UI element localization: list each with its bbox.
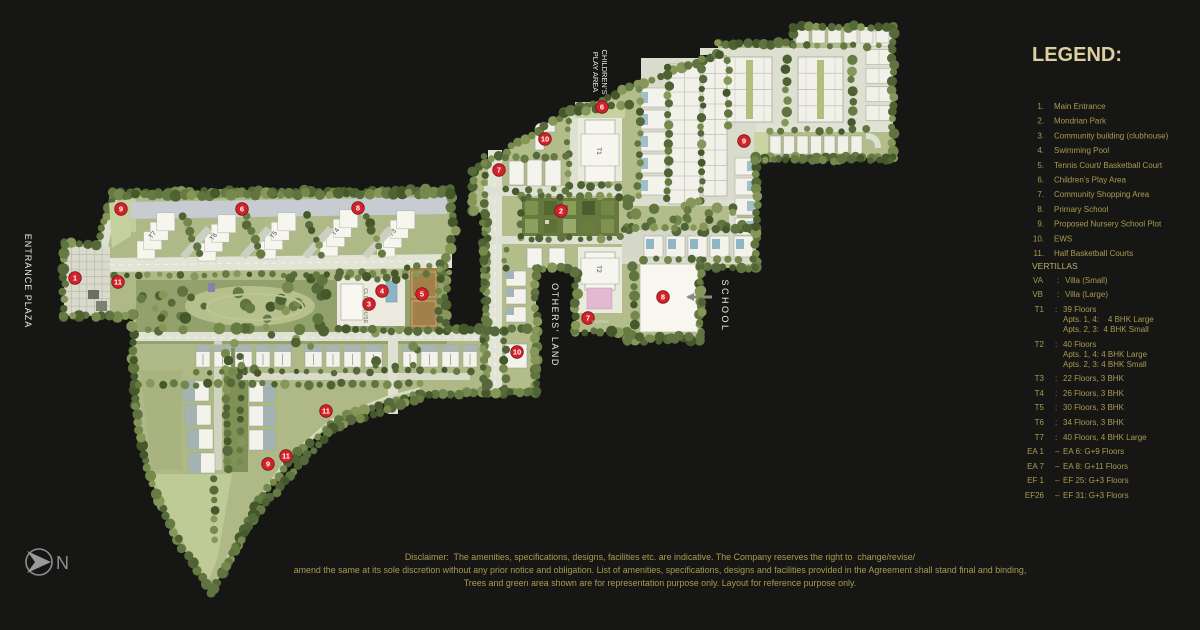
- svg-text:SHOPPING: SHOPPING: [592, 320, 609, 324]
- svg-text:5.: 5.: [1037, 161, 1044, 170]
- svg-text:T1: T1: [1035, 305, 1045, 314]
- svg-text:Villa (Small): Villa (Small): [1065, 276, 1108, 285]
- svg-text:7: 7: [497, 166, 501, 175]
- svg-text:EWS: EWS: [1054, 234, 1072, 243]
- svg-text:EF 1: EF 1: [1027, 476, 1044, 485]
- svg-text:1.: 1.: [1037, 102, 1044, 111]
- svg-text:Tennis Court/ Basketball Court: Tennis Court/ Basketball Court: [1054, 161, 1163, 170]
- svg-text:–: –: [1055, 491, 1060, 500]
- svg-text:3: 3: [367, 300, 371, 309]
- svg-text:–: –: [1055, 447, 1060, 456]
- svg-text::: :: [1055, 340, 1057, 349]
- svg-text:Main Entrance: Main Entrance: [1054, 102, 1106, 111]
- svg-text:EA 1: EA 1: [1027, 447, 1044, 456]
- svg-text:Proposed Nursery School Plot: Proposed Nursery School Plot: [1054, 220, 1162, 229]
- svg-text:Mondrian Park: Mondrian Park: [1054, 117, 1107, 126]
- svg-text:T5: T5: [1035, 403, 1045, 412]
- svg-text:amend the same at its sole dis: amend the same at its sole discretion wi…: [294, 565, 1027, 575]
- svg-text:Apts. 1, 4: 4 BHK Large: Apts. 1, 4: 4 BHK Large: [1063, 315, 1154, 324]
- svg-text:11: 11: [322, 407, 330, 416]
- svg-text:6: 6: [240, 205, 244, 214]
- svg-text:34 Floors, 3 BHK: 34 Floors, 3 BHK: [1063, 418, 1125, 427]
- svg-text:–: –: [1055, 462, 1060, 471]
- svg-text:EA 6: G+9 Floors: EA 6: G+9 Floors: [1063, 447, 1124, 456]
- svg-text:VA: VA: [1033, 276, 1044, 285]
- svg-text:10.: 10.: [1033, 234, 1044, 243]
- svg-text:Villa (Large): Villa (Large): [1065, 290, 1108, 299]
- svg-text:T4: T4: [1035, 389, 1045, 398]
- svg-text:T1: T1: [595, 147, 602, 155]
- svg-text:6: 6: [600, 103, 604, 112]
- svg-text:39 Floors: 39 Floors: [1063, 305, 1096, 314]
- svg-text:Community building (clubhouse): Community building (clubhouse): [1054, 131, 1169, 140]
- svg-text:Children’s Play Area: Children’s Play Area: [1054, 176, 1126, 185]
- svg-text:6.: 6.: [1037, 176, 1044, 185]
- svg-text:EA 8: G+11 Floors: EA 8: G+11 Floors: [1063, 462, 1128, 471]
- svg-text:T7: T7: [1035, 433, 1045, 442]
- svg-text:7.: 7.: [1037, 190, 1044, 199]
- svg-text:11: 11: [282, 452, 290, 461]
- svg-text:OTHERS’ LAND: OTHERS’ LAND: [550, 283, 560, 367]
- svg-text:3.: 3.: [1037, 131, 1044, 140]
- svg-text::: :: [1057, 276, 1059, 285]
- svg-text:40 Floors, 4 BHK Large: 40 Floors, 4 BHK Large: [1063, 433, 1147, 442]
- svg-text:30 Floors, 3 BHK: 30 Floors, 3 BHK: [1063, 403, 1125, 412]
- svg-text:N: N: [56, 553, 69, 573]
- svg-text:26 Floors, 3 BHK: 26 Floors, 3 BHK: [1063, 389, 1125, 398]
- svg-text::: :: [1055, 305, 1057, 314]
- svg-text:2: 2: [559, 207, 563, 216]
- svg-text:Apts. 2, 3: 4 BHK Small: Apts. 2, 3: 4 BHK Small: [1063, 325, 1149, 334]
- svg-text:Disclaimer: The amenities, sp: Disclaimer: The amenities, specification…: [405, 552, 916, 562]
- svg-text::: :: [1055, 418, 1057, 427]
- svg-text:EF26: EF26: [1025, 491, 1045, 500]
- svg-text:9: 9: [742, 137, 746, 146]
- svg-text:9.: 9.: [1037, 220, 1044, 229]
- svg-text:–: –: [1055, 476, 1060, 485]
- svg-text:PLAY AREA: PLAY AREA: [591, 52, 600, 93]
- svg-text:1: 1: [73, 274, 77, 283]
- svg-text:VERTILLAS: VERTILLAS: [1032, 261, 1078, 271]
- svg-text:10: 10: [541, 135, 549, 144]
- svg-text:9: 9: [119, 205, 123, 214]
- svg-text:Community Shopping Area: Community Shopping Area: [1054, 190, 1150, 199]
- svg-text:Trees and green area shown are: Trees and green area shown are for repre…: [464, 578, 857, 588]
- svg-text:VB: VB: [1032, 290, 1043, 299]
- svg-text:Apts. 2, 3: 4 BHK Small: Apts. 2, 3: 4 BHK Small: [1063, 360, 1147, 369]
- svg-text::: :: [1055, 374, 1057, 383]
- svg-text:5: 5: [420, 290, 424, 299]
- svg-text:Half Basketball Courts: Half Basketball Courts: [1054, 249, 1133, 258]
- svg-text:Primary School: Primary School: [1054, 205, 1108, 214]
- svg-text:11.: 11.: [1033, 249, 1044, 258]
- svg-text:ENTRANCE PLAZA: ENTRANCE PLAZA: [23, 234, 33, 329]
- svg-text:T2: T2: [595, 265, 602, 273]
- svg-text::: :: [1057, 290, 1059, 299]
- svg-text::: :: [1055, 403, 1057, 412]
- svg-text:T2: T2: [1035, 340, 1045, 349]
- svg-text:T3: T3: [1035, 374, 1045, 383]
- svg-text:10: 10: [513, 348, 521, 357]
- svg-text:Apts. 1, 4: 4 BHK Large: Apts. 1, 4: 4 BHK Large: [1063, 350, 1148, 359]
- svg-text:9: 9: [266, 460, 270, 469]
- svg-text:2.: 2.: [1037, 117, 1044, 126]
- svg-text:8: 8: [356, 204, 360, 213]
- svg-text:T6: T6: [1035, 418, 1045, 427]
- svg-text::: :: [1055, 433, 1057, 442]
- svg-text:EA 7: EA 7: [1027, 462, 1044, 471]
- svg-text:Swimming Pool: Swimming Pool: [1054, 146, 1109, 155]
- svg-text:22 Floors, 3 BHK: 22 Floors, 3 BHK: [1063, 374, 1125, 383]
- svg-text:7: 7: [586, 314, 590, 323]
- svg-text:SCHOOL: SCHOOL: [720, 279, 730, 332]
- svg-text:CHILDREN’S: CHILDREN’S: [600, 49, 609, 94]
- svg-text:EF 31: G+3 Floors: EF 31: G+3 Floors: [1063, 491, 1129, 500]
- svg-text::: :: [1055, 389, 1057, 398]
- svg-text:40 Floors: 40 Floors: [1063, 340, 1096, 349]
- svg-text:11: 11: [114, 278, 122, 287]
- svg-text:LEGEND:: LEGEND:: [1032, 44, 1122, 66]
- svg-text:8.: 8.: [1037, 205, 1044, 214]
- svg-text:8: 8: [661, 293, 665, 302]
- svg-text:4.: 4.: [1037, 146, 1044, 155]
- svg-text:EF 25: G+3 Floors: EF 25: G+3 Floors: [1063, 476, 1129, 485]
